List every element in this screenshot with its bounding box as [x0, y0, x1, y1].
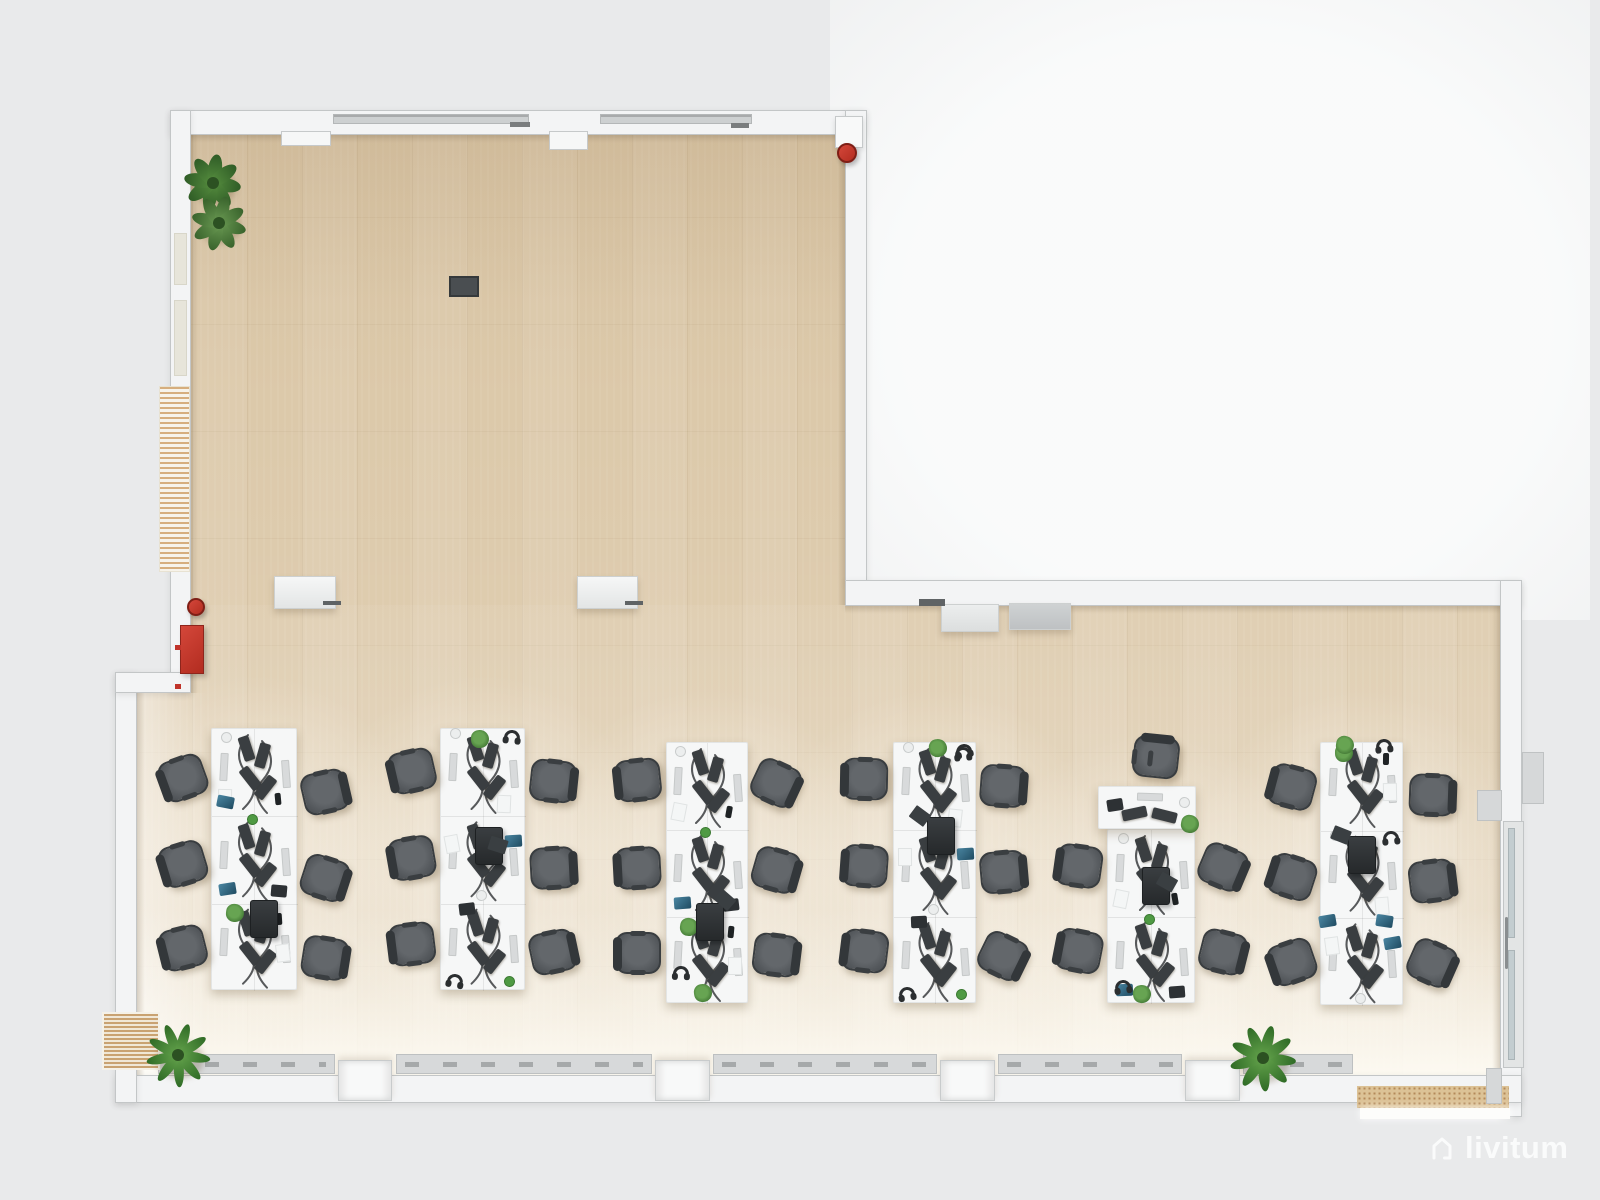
monitor [934, 756, 951, 783]
keyboard [1328, 767, 1337, 795]
keyboard [1328, 855, 1337, 883]
desk-divider [441, 904, 526, 905]
radiator-slots [1007, 1062, 1173, 1067]
chair-armrest [630, 970, 646, 975]
office-chair [613, 757, 663, 804]
chair-back [568, 851, 579, 885]
radiator-slots [722, 1062, 928, 1067]
chair-armrest [401, 921, 417, 928]
office-chair [751, 931, 802, 978]
monitor [1151, 807, 1178, 824]
desk-cluster-c6 [1320, 742, 1403, 1005]
chair-armrest [857, 796, 873, 801]
glass-pane [1508, 950, 1515, 1060]
coffee-cup [1117, 832, 1130, 845]
chair-armrest [1421, 858, 1437, 865]
notepad [898, 848, 912, 866]
keyboard [674, 767, 683, 795]
keyboard [509, 935, 519, 963]
keyboard [219, 841, 228, 869]
office-chair [529, 846, 577, 890]
keyboard [281, 760, 291, 788]
office-chair [386, 833, 439, 882]
office-chair [299, 934, 351, 983]
chair-back [613, 937, 622, 971]
monitor [1361, 932, 1378, 959]
keyboard [1116, 854, 1125, 882]
coffee-cup [1354, 992, 1366, 1004]
headphone-ear [672, 973, 678, 980]
notepad [671, 802, 688, 822]
wall-stub [1486, 1068, 1502, 1104]
green-cup [247, 813, 258, 824]
livitum-watermark: livitum [1428, 1130, 1568, 1166]
headphone-ear [1382, 839, 1389, 847]
headphone-ear [515, 737, 522, 745]
monitor [254, 829, 271, 856]
office-chair [1131, 734, 1181, 781]
desktop-printer [250, 900, 278, 938]
chair-armrest [630, 931, 646, 936]
notepad [443, 833, 460, 853]
notepad [728, 957, 742, 975]
door-sill [1360, 1108, 1510, 1119]
desk-plant-leaves [693, 983, 713, 1003]
keyboard [281, 847, 291, 875]
office-chair [841, 843, 890, 888]
laptop [1168, 985, 1185, 998]
keyboard [901, 767, 910, 795]
coffee-cup [449, 727, 461, 739]
fire-hose-cabinet [180, 625, 204, 674]
chair-armrest [1425, 773, 1441, 779]
wall [845, 110, 867, 583]
laptop [1318, 914, 1337, 929]
ac-vent [600, 114, 752, 124]
monitor [706, 756, 723, 783]
green-cup [503, 975, 516, 988]
floor-light-wash [190, 133, 845, 303]
column-pillar [655, 1060, 710, 1101]
chair-armrest [1147, 750, 1154, 766]
smartphone [725, 806, 733, 819]
potted-plant [193, 197, 245, 249]
plant-center [207, 177, 219, 189]
headphone-ear [898, 995, 905, 1003]
laptop [271, 884, 288, 897]
keyboard [960, 861, 970, 889]
window-pane [174, 233, 187, 285]
ambient-light [830, 0, 1590, 620]
headphones [673, 966, 689, 980]
coffee-cup [1179, 797, 1191, 809]
ac-vent [333, 114, 529, 124]
desktop-printer [927, 817, 955, 855]
desk-plant [1179, 813, 1200, 834]
headphone-ear [503, 736, 510, 744]
headphone-ear [910, 993, 917, 1001]
wall-fixture-mark [919, 599, 945, 606]
column-pillar [940, 1060, 995, 1101]
desk-plant-leaves [225, 903, 245, 923]
headphone-ear [1126, 986, 1133, 994]
headphones [504, 729, 521, 745]
radiator [396, 1054, 652, 1074]
chair-armrest [547, 758, 563, 765]
keyboard [901, 941, 910, 969]
chair-armrest [770, 932, 786, 939]
headphones [898, 986, 916, 1003]
desk-divider [441, 816, 526, 817]
green-cup [700, 827, 711, 838]
coffee-cup [221, 732, 232, 743]
keyboard [1387, 950, 1397, 978]
wall [115, 672, 191, 693]
desk-cluster-c3 [666, 742, 748, 1003]
headphone-ear [684, 973, 690, 980]
floor-socket [449, 276, 479, 297]
office-chair [978, 849, 1027, 895]
monitor [706, 843, 723, 870]
office-chair [614, 846, 662, 890]
keyboard [509, 760, 519, 788]
keyboard [509, 847, 519, 875]
chair-back [1447, 780, 1457, 814]
fire-extinguisher [837, 143, 857, 163]
laptop [956, 848, 974, 861]
headphone-ear [954, 754, 961, 761]
office-chair [1407, 857, 1458, 904]
sideboard-cabinet [1009, 603, 1071, 630]
keyboard [1179, 948, 1189, 976]
glass-pane [1508, 828, 1515, 938]
sideboard-cabinet [941, 604, 999, 632]
chair-back [612, 853, 623, 887]
smartphone [1171, 893, 1179, 906]
smartphone [727, 926, 734, 939]
desk-plant-leaves [927, 737, 948, 758]
desk-plant-leaves [1179, 813, 1200, 834]
monitor [1151, 930, 1168, 957]
wall-stub [1477, 790, 1502, 821]
coffee-cup [902, 741, 915, 754]
desk-cluster-c2 [440, 728, 525, 990]
notepad [496, 795, 511, 814]
keyboard [219, 753, 228, 781]
headphones [1382, 831, 1399, 846]
headphones [445, 973, 463, 990]
potted-plant [148, 1025, 208, 1085]
chair-armrest [858, 843, 874, 849]
headphone-ear [1394, 838, 1401, 846]
radiator [998, 1054, 1182, 1074]
keyboard [674, 854, 683, 882]
keyboard [448, 753, 457, 781]
chair-armrest [857, 757, 873, 762]
safety-sign [175, 684, 181, 689]
chair-armrest [629, 846, 645, 852]
wall-shadow [837, 133, 845, 605]
desk-plant [225, 903, 245, 923]
chair-armrest [544, 846, 560, 852]
wall [845, 580, 1522, 606]
radiator-slots [405, 1062, 643, 1067]
potted-plant [1232, 1027, 1294, 1089]
office-chair [615, 932, 661, 974]
radiator [713, 1054, 937, 1074]
desk-plant [927, 737, 948, 758]
safety-sign [175, 645, 181, 650]
laptop [1375, 914, 1394, 928]
desk-top-c5 [1098, 786, 1196, 829]
wall-fixture-mark [323, 601, 341, 605]
laptop [911, 916, 927, 929]
plant-center [213, 217, 225, 229]
desk-plant-leaves [1132, 984, 1153, 1005]
green-cup [955, 988, 967, 1000]
desk-cluster-c5 [1107, 829, 1195, 1003]
chair-armrest [1423, 812, 1439, 818]
laptop [1383, 935, 1402, 950]
headphone-ear [1387, 745, 1394, 753]
keyboard [1137, 793, 1163, 802]
house-icon [1428, 1134, 1456, 1162]
desk-divider [894, 917, 977, 918]
coffee-cup [927, 903, 939, 915]
chair-armrest [631, 885, 647, 891]
smartphone [274, 792, 281, 805]
headphones [1375, 738, 1392, 754]
desk-plant-leaves [1335, 735, 1356, 756]
office-chair [387, 920, 438, 967]
desktop-printer [1348, 836, 1376, 874]
smartphone [1383, 752, 1389, 764]
chair-back [840, 763, 850, 797]
chair-armrest [1131, 749, 1138, 765]
wall-radiator-grille [159, 386, 190, 572]
monitor [482, 949, 506, 975]
plant-center [1257, 1052, 1269, 1064]
desk-plant [470, 730, 489, 749]
keyboard [733, 774, 743, 802]
desktop-printer [696, 903, 724, 941]
coffee-cup [674, 745, 687, 758]
notepad [1383, 783, 1397, 801]
wall-stub [1522, 752, 1544, 804]
laptop [458, 902, 475, 916]
headphone-ear [1114, 987, 1121, 995]
desk-plant [693, 983, 713, 1003]
monitor [934, 930, 951, 957]
keyboard [1179, 861, 1189, 889]
office-chair [1052, 926, 1105, 976]
coffee-cup [475, 890, 487, 902]
headphone-ear [444, 980, 451, 988]
headphones [1114, 979, 1132, 995]
wall-fixture-mark [625, 601, 643, 605]
column-pillar [338, 1060, 392, 1101]
notepad [275, 943, 291, 963]
plant-center [172, 1049, 184, 1061]
chair-armrest [993, 802, 1009, 808]
vent-grille-mark [510, 122, 530, 127]
keyboard [960, 774, 970, 802]
chair-armrest [855, 882, 871, 888]
headphone-ear [456, 982, 463, 990]
monitor [1361, 756, 1378, 783]
office-chair [842, 758, 889, 801]
watermark-text: livitum [1465, 1130, 1568, 1166]
laptop [673, 896, 691, 909]
notepad [1324, 936, 1340, 956]
office-chair [1408, 773, 1455, 817]
keyboard [960, 948, 970, 976]
window-pane [174, 300, 187, 376]
keyboard [1116, 941, 1125, 969]
fire-extinguisher [187, 598, 205, 616]
notepad [1112, 889, 1129, 909]
vent-grille-mark [731, 123, 749, 128]
desk-plant [1335, 735, 1356, 756]
office-chair [979, 763, 1028, 808]
headphone-ear [966, 753, 973, 760]
chair-armrest [628, 757, 644, 764]
desk-plant [1132, 984, 1153, 1005]
office-chair [528, 758, 578, 805]
headphone-ear [1375, 746, 1382, 754]
glass-door [1503, 821, 1524, 1068]
desk-cluster-c4 [893, 742, 976, 1003]
keyboard [1387, 862, 1397, 890]
wall-notch [281, 131, 331, 146]
laptop [1106, 798, 1124, 812]
desk-plant-leaves [470, 730, 489, 749]
chair-armrest [993, 849, 1009, 855]
monitor [482, 917, 499, 944]
laptop [216, 794, 235, 809]
keyboard [733, 861, 743, 889]
keyboard [219, 928, 228, 956]
monitor [1151, 962, 1175, 988]
wall [115, 1075, 1522, 1103]
chair-back [839, 848, 850, 883]
laptop [219, 882, 238, 896]
notepad [1375, 897, 1390, 916]
door-handle [1505, 917, 1508, 969]
office-chair [1053, 842, 1104, 890]
wall-notch [549, 131, 588, 150]
monitor [254, 742, 271, 769]
headphones [955, 746, 972, 761]
desk-cluster-c1 [211, 728, 297, 990]
chair-armrest [546, 885, 562, 891]
keyboard [448, 928, 457, 956]
floorplan-scene: livitum [0, 0, 1600, 1200]
chair-armrest [859, 928, 875, 935]
chair-armrest [1073, 843, 1090, 850]
office-chair [840, 927, 891, 974]
chair-armrest [996, 763, 1012, 769]
monitor [1121, 806, 1148, 822]
